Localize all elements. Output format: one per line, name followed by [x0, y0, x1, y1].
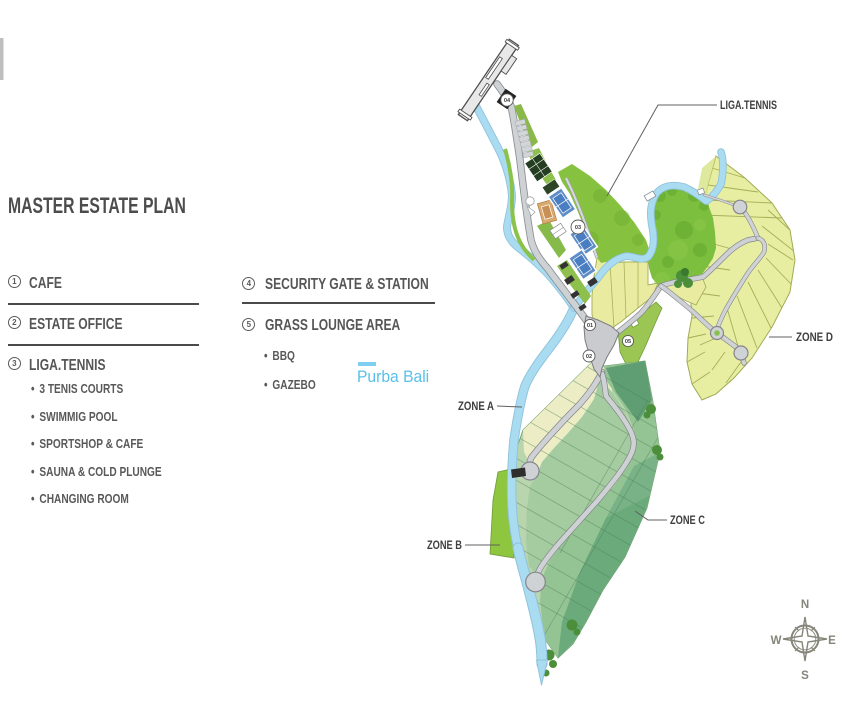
svg-text:N: N — [801, 599, 809, 611]
svg-text:04: 04 — [504, 98, 511, 104]
svg-text:01: 01 — [587, 323, 593, 329]
svg-text:ZONE A: ZONE A — [458, 399, 494, 413]
svg-text:W: W — [771, 635, 782, 647]
svg-text:05: 05 — [625, 339, 631, 345]
svg-text:S: S — [801, 670, 809, 682]
svg-text:03: 03 — [575, 225, 581, 231]
svg-text:ZONE D: ZONE D — [796, 330, 833, 344]
svg-text:02: 02 — [586, 354, 592, 360]
svg-text:ZONE C: ZONE C — [670, 513, 705, 527]
svg-text:ZONE B: ZONE B — [427, 538, 462, 552]
svg-text:LIGA.TENNIS: LIGA.TENNIS — [720, 98, 777, 112]
svg-text:E: E — [828, 635, 836, 647]
